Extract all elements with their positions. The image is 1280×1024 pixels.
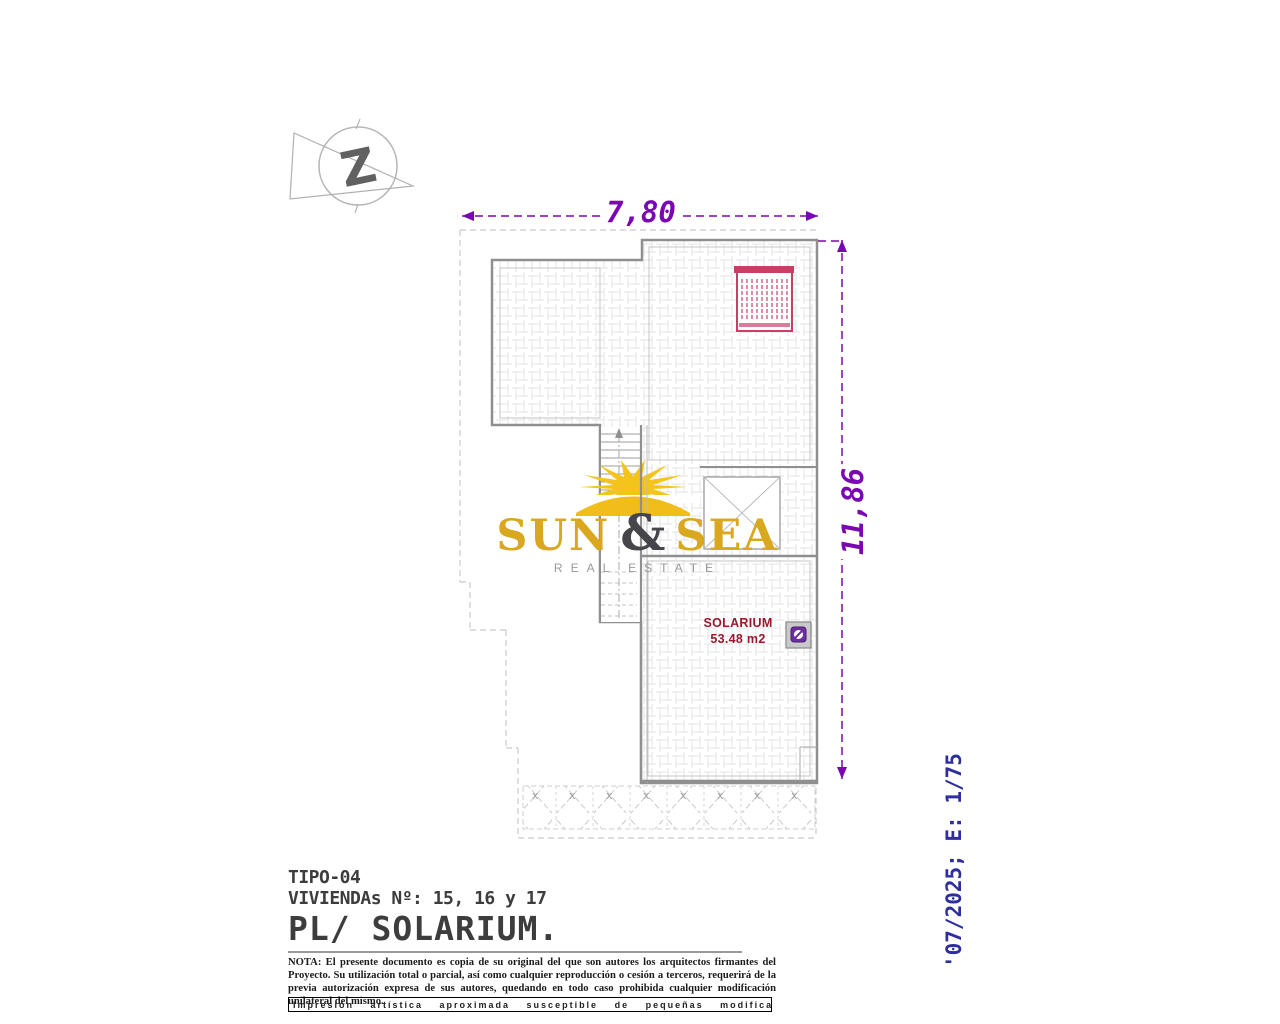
title-divider [288, 951, 742, 953]
room-area: 53.48 m2 [693, 632, 783, 648]
drain-symbol-icon [786, 622, 811, 648]
height-dimension-label: 11,86 [839, 464, 868, 559]
plan-sheet: x [0, 0, 1280, 1024]
logo-subtitle: REAL ESTATE [540, 561, 735, 575]
room-name: SOLARIUM [693, 616, 783, 632]
pergola-trellis-band [523, 786, 815, 829]
date-scale-note: '07/2025; E: 1/75 [942, 753, 966, 968]
logo-wordmark: SUN & SEA [540, 508, 735, 558]
room-label: SOLARIUM 53.48 m2 [693, 616, 783, 647]
disclaimer-box: Impresión artística aproximada susceptib… [288, 997, 772, 1012]
width-dimension-label: 7,80 [602, 198, 680, 227]
north-arrow-icon: Z [290, 119, 413, 213]
units-label: VIVIENDAs Nº: 15, 16 y 17 [288, 889, 546, 909]
logo-ampersand: & [620, 508, 665, 558]
logo-word-sun: SUN [496, 515, 610, 558]
pergola-grill-icon [734, 266, 794, 331]
sun-sea-logo: SUN & SEA REAL ESTATE [540, 508, 735, 575]
type-label: TIPO-04 [288, 868, 360, 888]
plan-title: PL/ SOLARIUM. [288, 911, 559, 947]
logo-word-sea: SEA [675, 515, 778, 558]
north-glyph: Z [336, 137, 382, 199]
